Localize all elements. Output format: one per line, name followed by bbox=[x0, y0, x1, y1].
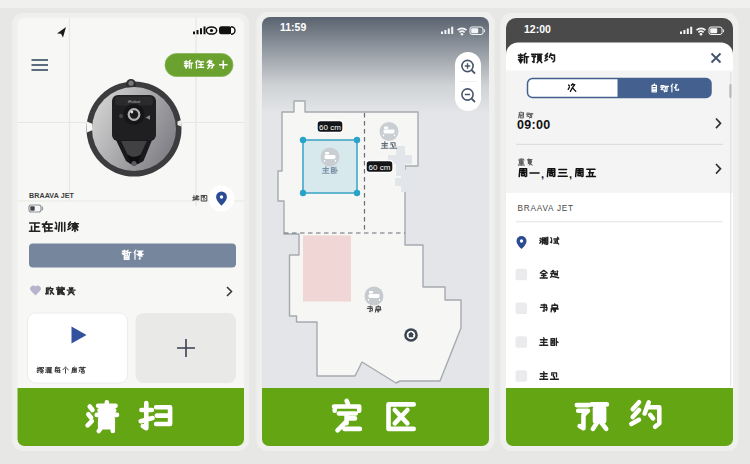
svg-text:BRAAVA JET: BRAAVA JET bbox=[29, 192, 75, 200]
svg-text:,: , bbox=[569, 168, 572, 180]
svg-text:60 cm: 60 cm bbox=[319, 123, 341, 132]
svg-text:11:59: 11:59 bbox=[280, 21, 306, 33]
svg-text:,: , bbox=[541, 168, 544, 180]
svg-text:60 cm: 60 cm bbox=[369, 163, 391, 172]
svg-text:09:00: 09:00 bbox=[517, 118, 550, 132]
svg-text:BRAAVA JET: BRAAVA JET bbox=[518, 204, 574, 213]
svg-text:12:00: 12:00 bbox=[524, 23, 551, 35]
svg-text:iRobot: iRobot bbox=[128, 99, 141, 104]
